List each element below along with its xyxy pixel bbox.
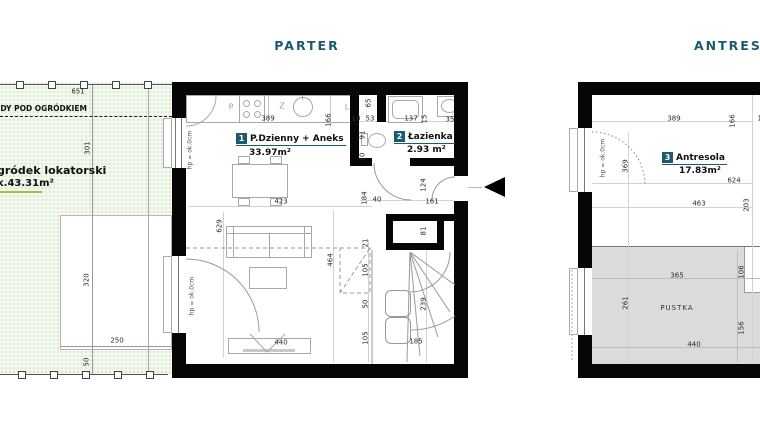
dimension-label: 440 <box>687 342 700 349</box>
dimension-label: 166 <box>730 114 737 127</box>
dimension-label: 369 <box>623 159 630 172</box>
dimension-label: 106 <box>739 265 746 278</box>
dimension-label: 261 <box>623 296 630 309</box>
dimension-label: 389 <box>667 116 680 123</box>
floor-plan-canvas: PARTER ANTRESOLA ODY POD OGRÓDKIEM gróde… <box>0 0 760 428</box>
dimension-layer-antresola: 38916610369624463203365106261156440 <box>0 0 760 428</box>
dimension-label: 156 <box>739 321 746 334</box>
dimension-label: 365 <box>670 273 683 280</box>
dimension-label: 203 <box>744 198 751 211</box>
dimension-label: 463 <box>692 201 705 208</box>
dimension-label: 624 <box>727 178 740 185</box>
